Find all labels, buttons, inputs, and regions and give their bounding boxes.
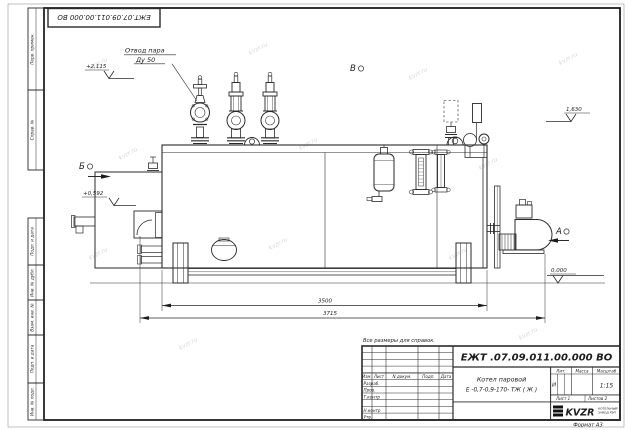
svg-text:Перв. примен.: Перв. примен.: [30, 33, 35, 64]
svg-text:Инв. № подл.: Инв. № подл.: [30, 387, 35, 416]
svg-text:Подп. и дата: Подп. и дата: [30, 227, 35, 256]
watermark-layer: kvzr.ru kvzr.ru kvzr.ru kvzr.ru kvzr.ru …: [88, 41, 579, 352]
safety-valve-1: [227, 72, 245, 143]
margin-cell: Подп. и дата: [28, 218, 44, 265]
safety-valve-2: [261, 72, 279, 143]
svg-text:Лит.: Лит.: [555, 368, 565, 373]
svg-text:3500: 3500: [318, 299, 332, 305]
svg-text:Листов 2: Листов 2: [587, 396, 608, 401]
svg-text:Инв. № дубл.: Инв. № дубл.: [30, 268, 35, 297]
lit-value: И: [552, 383, 556, 389]
svg-text:Пров.: Пров.: [364, 388, 376, 393]
lifting-lug-right: [445, 137, 465, 145]
blower-fan: [134, 211, 162, 264]
svg-text:kvzr.ru: kvzr.ru: [408, 66, 429, 82]
scale-value: 1:15: [600, 383, 614, 390]
svg-text:Н.контр: Н.контр: [364, 408, 381, 413]
svg-text:Утв.: Утв.: [364, 414, 373, 419]
svg-text:Лист: Лист: [373, 374, 385, 379]
svg-text:Справ. №: Справ. №: [30, 119, 35, 140]
svg-text:kvzr.ru: kvzr.ru: [518, 326, 539, 342]
svg-text:kvzr.ru: kvzr.ru: [88, 246, 109, 262]
svg-text:kvzr.ru: kvzr.ru: [118, 146, 139, 162]
level-gauge-2: [432, 150, 451, 192]
format-label: Формат А3: [573, 423, 603, 429]
svg-text:Масса: Масса: [575, 368, 589, 373]
drawing-sheet: kvzr.ru kvzr.ru kvzr.ru kvzr.ru kvzr.ru …: [0, 0, 644, 430]
svg-text:0,000: 0,000: [551, 268, 567, 274]
svg-text:Лист 1: Лист 1: [555, 396, 570, 401]
svg-text:kvzr.ru: kvzr.ru: [268, 236, 289, 252]
elevation-mark-top: +2,115: [85, 64, 134, 79]
svg-text:Взам. инв. №: Взам. инв. №: [30, 303, 35, 332]
view-label-v: В: [350, 64, 364, 74]
steam-outlet-callout: Отвод пара Ду 50: [124, 47, 197, 102]
reference-note: Все размеры для справок.: [363, 338, 435, 344]
company-logo: KVZR КОТЕЛЬНЫЙ ЗАВОД РЭП: [553, 406, 618, 419]
svg-text:Т.контр: Т.контр: [364, 394, 381, 399]
lifting-lug-left: [243, 138, 261, 146]
dimension-body-length: 3500: [162, 270, 487, 311]
svg-text:Ду 50: Ду 50: [135, 56, 155, 64]
svg-text:1,630: 1,630: [566, 107, 582, 113]
svg-text:3715: 3715: [323, 311, 337, 317]
svg-text:+2,115: +2,115: [86, 64, 107, 70]
logo-text: KVZR: [566, 408, 595, 419]
svg-text:+0,592: +0,592: [83, 191, 104, 197]
dimension-overall-length: 3715: [140, 236, 545, 323]
svg-text:kvzr.ru: kvzr.ru: [248, 41, 269, 57]
svg-text:Подп. и дата: Подп. и дата: [30, 344, 35, 373]
svg-text:ЕЖТ.07.09.011.00.000 ВО: ЕЖТ.07.09.011.00.000 ВО: [57, 13, 151, 21]
level-gauge-1: [410, 150, 433, 195]
doc-number: ЕЖТ .07.09.011.00.000 ВО: [461, 353, 613, 364]
svg-text:А: А: [555, 227, 562, 237]
svg-text:kvzr.ru: kvzr.ru: [558, 51, 579, 67]
pressure-gauge-set: [444, 101, 482, 158]
margin-stamp-columns: Перв. примен. Справ. № Подп. и дата Инв.…: [28, 8, 44, 420]
elevation-mark-mid: +0,592: [82, 191, 136, 206]
support-skid: [173, 243, 471, 283]
title-block: Все размеры для справок. ЕЖТ .07.09.011.…: [362, 338, 620, 429]
svg-text:kvzr.ru: kvzr.ru: [478, 156, 499, 172]
svg-text:Изм.: Изм.: [362, 374, 372, 379]
svg-text:N докум.: N докум.: [393, 374, 412, 379]
svg-text:Дата: Дата: [440, 374, 452, 379]
logo-sub2: ЗАВОД РЭП: [598, 411, 617, 415]
elevation-mark-right: 1,630: [546, 107, 590, 122]
margin-cell: Справ. №: [28, 90, 44, 170]
view-label-b: Б: [79, 162, 111, 179]
manhole: [212, 238, 237, 261]
svg-text:Масштаб: Масштаб: [597, 368, 617, 373]
sample-cooler: [367, 145, 394, 202]
margin-cell: Инв. № дубл.: [28, 265, 44, 300]
margin-cell: Инв. № подл.: [28, 383, 44, 420]
margin-cell: Взам. инв. №: [28, 300, 44, 335]
annotations: Отвод пара Ду 50 Б В А +2,115: [79, 47, 604, 324]
svg-text:В: В: [350, 64, 356, 74]
feed-pump: [487, 186, 552, 268]
svg-text:kvzr.ru: kvzr.ru: [178, 336, 199, 352]
economizer-valve: [147, 157, 159, 171]
boiler-body: [162, 145, 487, 268]
elevation-mark-zero: 0,000: [547, 268, 604, 283]
margin-cell: Перв. примен.: [28, 8, 44, 90]
svg-text:kvzr.ru: kvzr.ru: [298, 136, 319, 152]
inlet-elbow: [72, 216, 96, 234]
svg-text:Разраб.: Разраб.: [364, 381, 380, 386]
svg-text:Отвод пара: Отвод пара: [125, 47, 165, 55]
svg-text:Подп.: Подп.: [422, 374, 434, 379]
boiler-front-view: [72, 72, 606, 283]
svg-text:Б: Б: [79, 162, 85, 172]
svg-text:kvzr.ru: kvzr.ru: [448, 246, 469, 262]
product-name-line1: Котел паровой: [477, 377, 526, 384]
margin-cell: Подп. и дата: [28, 335, 44, 383]
steam-outlet-valve: [191, 76, 210, 144]
top-stamp: ЕЖТ.07.09.011.00.000 ВО: [48, 9, 160, 28]
product-name-line2: Е -0,7-0,9-170- ТЖ ( Ж ): [466, 388, 537, 394]
